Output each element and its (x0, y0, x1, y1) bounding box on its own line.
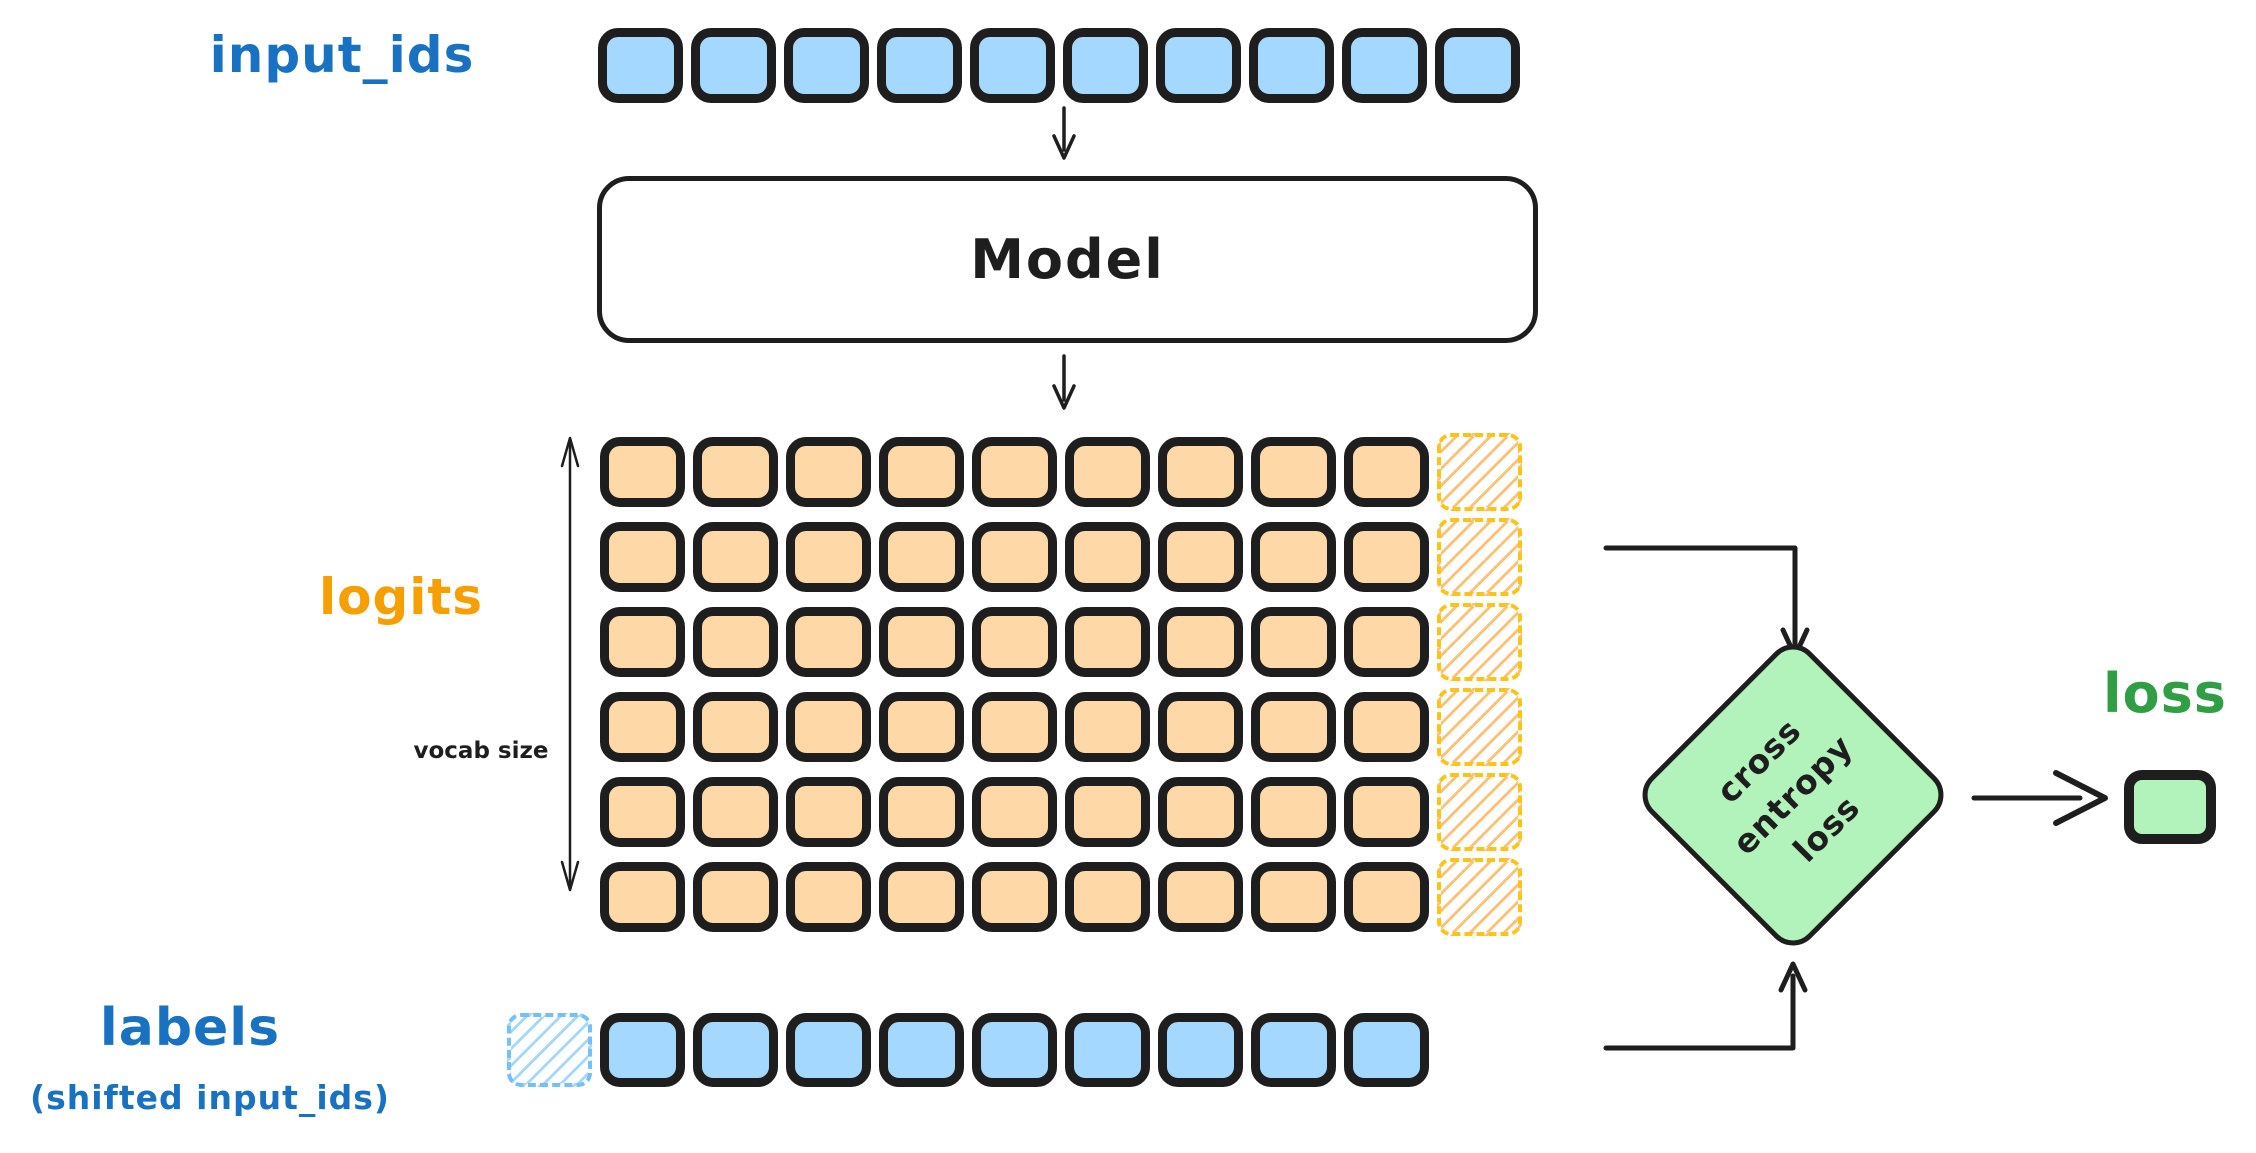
logit-cell (786, 607, 871, 677)
logit-cell (1251, 522, 1336, 592)
logit-cell (879, 777, 964, 847)
labels-sublabel: (shifted input_ids) (30, 1078, 390, 1117)
logit-cell-dashed (1437, 518, 1522, 596)
logit-cell (1251, 862, 1336, 932)
logit-cell (1065, 777, 1150, 847)
input-ids-label: input_ids (162, 26, 522, 84)
input-ids-row (598, 28, 1520, 103)
loss-label: loss (2085, 662, 2245, 725)
logit-cell (693, 522, 778, 592)
logit-cell (600, 777, 685, 847)
label-token-cell-dashed (507, 1013, 592, 1087)
logit-cell (1158, 692, 1243, 762)
input-token-cell (1249, 28, 1334, 103)
logit-cell (1251, 692, 1336, 762)
logit-cell (1065, 522, 1150, 592)
labels-row (507, 1013, 1429, 1087)
logit-cell (786, 437, 871, 507)
logit-cell (1251, 437, 1336, 507)
logit-cell-dashed (1437, 688, 1522, 766)
logit-cell (786, 522, 871, 592)
logit-cell (1344, 607, 1429, 677)
logit-cell (1158, 862, 1243, 932)
input-token-cell (877, 28, 962, 103)
arrow-labels-to-diamond (1598, 950, 1828, 1060)
logit-cell (972, 437, 1057, 507)
logit-cell (1344, 692, 1429, 762)
logit-cell (600, 522, 685, 592)
logit-cell (600, 607, 685, 677)
label-token-cell (1251, 1013, 1336, 1087)
logit-cell (693, 437, 778, 507)
arrow-diamond-to-loss (1968, 762, 2118, 834)
logit-cell (879, 692, 964, 762)
logit-cell (879, 607, 964, 677)
logit-cell (600, 692, 685, 762)
logit-cell-dashed (1437, 858, 1522, 936)
arrow-input-to-model (1040, 104, 1088, 164)
label-token-cell (1158, 1013, 1243, 1087)
arrow-model-to-logits (1040, 352, 1088, 414)
logit-cell (972, 777, 1057, 847)
logit-cell (1065, 607, 1150, 677)
label-token-cell (1344, 1013, 1429, 1087)
label-token-cell (786, 1013, 871, 1087)
loss-square (2124, 770, 2216, 844)
diagram-canvas: input_ids Model logits vocab size labels… (0, 0, 2256, 1153)
logit-cell-dashed (1437, 773, 1522, 851)
logit-cell-dashed (1437, 433, 1522, 511)
input-token-cell (1435, 28, 1520, 103)
label-token-cell (879, 1013, 964, 1087)
logits-label: logits (281, 568, 521, 626)
logit-cell (1065, 862, 1150, 932)
model-label: Model (970, 228, 1165, 291)
logit-cell (786, 777, 871, 847)
model-box: Model (597, 176, 1538, 343)
logit-cell (1158, 522, 1243, 592)
logit-cell (972, 522, 1057, 592)
logit-cell (693, 692, 778, 762)
logit-cell (972, 607, 1057, 677)
logit-cell (879, 862, 964, 932)
logit-cell (786, 692, 871, 762)
logit-cell (1344, 862, 1429, 932)
cross-entropy-diamond-text: cross entropy loss (1632, 634, 1954, 956)
logit-cell (879, 522, 964, 592)
logit-cell (693, 862, 778, 932)
input-token-cell (598, 28, 683, 103)
logit-cell (879, 437, 964, 507)
labels-row-solid (600, 1013, 1429, 1087)
logit-cell (1158, 777, 1243, 847)
input-token-cell (1342, 28, 1427, 103)
logit-cell (1251, 777, 1336, 847)
logit-cell (1158, 607, 1243, 677)
logit-cell (972, 862, 1057, 932)
label-token-cell (600, 1013, 685, 1087)
logit-cell (1344, 777, 1429, 847)
logit-cell (693, 607, 778, 677)
logit-cell-dashed (1437, 603, 1522, 681)
label-token-cell (1065, 1013, 1150, 1087)
logit-cell (1251, 607, 1336, 677)
input-token-cell (1156, 28, 1241, 103)
input-token-cell (784, 28, 869, 103)
input-token-cell (691, 28, 776, 103)
logit-cell (600, 862, 685, 932)
logit-cell (1344, 522, 1429, 592)
vocab-size-arrow (550, 428, 590, 900)
label-token-cell (972, 1013, 1057, 1087)
logit-cell (1158, 437, 1243, 507)
logit-cell (972, 692, 1057, 762)
labels-label: labels (40, 998, 340, 1058)
logits-grid (600, 433, 1522, 936)
logit-cell (1344, 437, 1429, 507)
logit-cell (693, 777, 778, 847)
logit-cell (1065, 437, 1150, 507)
logit-cell (600, 437, 685, 507)
logit-cell (1065, 692, 1150, 762)
input-token-cell (1063, 28, 1148, 103)
label-token-cell (693, 1013, 778, 1087)
logit-cell (786, 862, 871, 932)
input-token-cell (970, 28, 1055, 103)
